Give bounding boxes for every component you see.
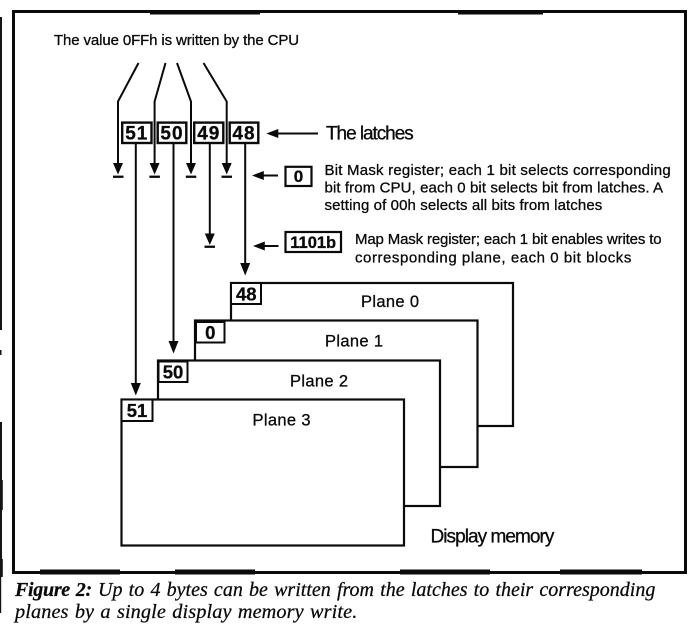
svg-text:48: 48: [236, 284, 257, 305]
svg-text:1101b: 1101b: [290, 234, 336, 252]
svg-text:Map Mask register; each 1 bit: Map Mask register; each 1 bit enables wr…: [355, 231, 661, 248]
svg-text:planes by a single display mem: planes by a single display memory write.: [13, 601, 357, 623]
svg-text:Figure 2: Up to 4 bytes can be: Figure 2: Up to 4 bytes can be written f…: [14, 579, 655, 601]
svg-text:The latches: The latches: [326, 124, 413, 145]
svg-text:48: 48: [232, 124, 255, 145]
svg-text:Bit Mask register; each 1 bit: Bit Mask register; each 1 bit selects co…: [325, 162, 671, 179]
svg-text:Plane 2: Plane 2: [290, 373, 348, 391]
svg-text:corresponding plane, each 0 bi: corresponding plane, each 0 bit blocks: [355, 249, 632, 266]
svg-text:0: 0: [294, 167, 303, 186]
svg-text:The value 0FFh is written by t: The value 0FFh is written by the CPU: [54, 32, 299, 49]
svg-text:Plane 1: Plane 1: [325, 333, 383, 351]
svg-text:setting of 00h selects all bit: setting of 00h selects all bits from lat…: [325, 197, 603, 214]
svg-text:51: 51: [125, 124, 148, 145]
svg-text:51: 51: [127, 400, 148, 421]
svg-text:0: 0: [205, 322, 215, 343]
svg-text:Plane 3: Plane 3: [253, 412, 311, 430]
svg-text:bit from CPU, each 0 bit selec: bit from CPU, each 0 bit selects bit fro…: [325, 179, 664, 196]
svg-text:50: 50: [160, 124, 183, 145]
svg-text:50: 50: [163, 362, 184, 383]
svg-text:Plane 0: Plane 0: [361, 293, 419, 311]
svg-text:Display memory: Display memory: [431, 527, 555, 548]
svg-text:49: 49: [197, 124, 220, 145]
